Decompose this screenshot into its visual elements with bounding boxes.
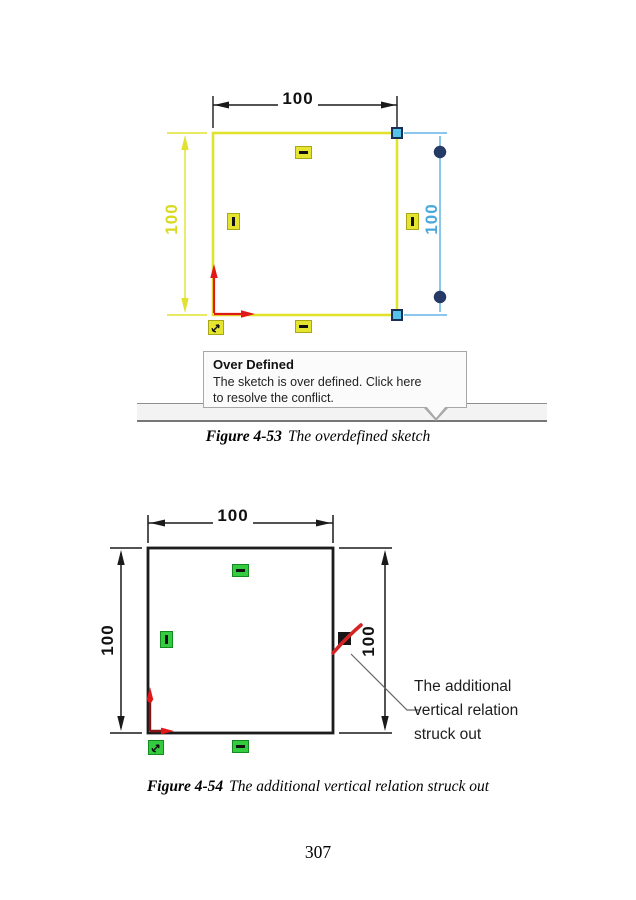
figure1-caption: Figure 4-53The overdefined sketch xyxy=(0,428,636,446)
tooltip-body: The sketch is over defined. Click here t… xyxy=(213,374,457,407)
horizontal-relation-badge xyxy=(295,146,312,159)
horizontal-relation-badge xyxy=(295,320,312,333)
fig1-top-dimension-value: 100 xyxy=(278,89,318,109)
fig2-right-dimension-value: 100 xyxy=(359,621,379,661)
red-strikethrough-icon xyxy=(333,625,361,653)
over-defined-tooltip: Over Defined The sketch is over defined.… xyxy=(203,351,467,408)
vertical-relation-badge xyxy=(160,631,173,648)
document-page: 100 100 100 Over Defined The sketch is o… xyxy=(0,0,636,900)
fixed-relation-badge xyxy=(148,740,164,755)
figure2-caption-text: The additional vertical relation struck … xyxy=(229,778,489,795)
fixed-relation-badge xyxy=(208,320,224,335)
vertical-relation-badge xyxy=(406,213,419,230)
fig1-origin-icon xyxy=(210,264,255,318)
fig1-sketch-square xyxy=(213,133,397,315)
fixed-relation-icon xyxy=(150,742,162,754)
fixed-relation-icon xyxy=(210,322,222,334)
fig2-origin-icon xyxy=(147,687,174,734)
vertical-relation-badge xyxy=(227,213,240,230)
struck-relation-annotation: The additional vertical relation struck … xyxy=(414,675,518,747)
fig1-right-dimension-value: 100 xyxy=(422,199,442,239)
dimension-grip-bottom xyxy=(435,292,446,303)
figure1-caption-text: The overdefined sketch xyxy=(288,428,430,445)
horizontal-relation-icon xyxy=(236,745,245,748)
dimension-grip-top xyxy=(435,147,446,158)
horizontal-relation-icon xyxy=(299,151,308,154)
fig1-left-dimension-value: 100 xyxy=(162,199,182,239)
figure1-caption-label: Figure 4-53 xyxy=(206,428,282,445)
sketch-linework xyxy=(0,0,636,900)
vertical-relation-icon xyxy=(232,217,235,226)
struck-vertical-relation-icon xyxy=(333,625,361,653)
horizontal-relation-icon xyxy=(236,569,245,572)
horizontal-relation-icon xyxy=(299,325,308,328)
figure2-caption: Figure 4-54The additional vertical relat… xyxy=(0,778,636,796)
horizontal-relation-badge xyxy=(232,564,249,577)
vertical-relation-icon xyxy=(165,635,168,644)
tooltip-title: Over Defined xyxy=(213,357,457,372)
fig2-left-dimension-value: 100 xyxy=(98,620,118,660)
figure2-caption-label: Figure 4-54 xyxy=(147,778,223,795)
fig2-top-dimension-value: 100 xyxy=(213,506,253,526)
vertical-relation-icon xyxy=(411,217,414,226)
horizontal-relation-badge xyxy=(232,740,249,753)
page-number: 307 xyxy=(0,842,636,863)
